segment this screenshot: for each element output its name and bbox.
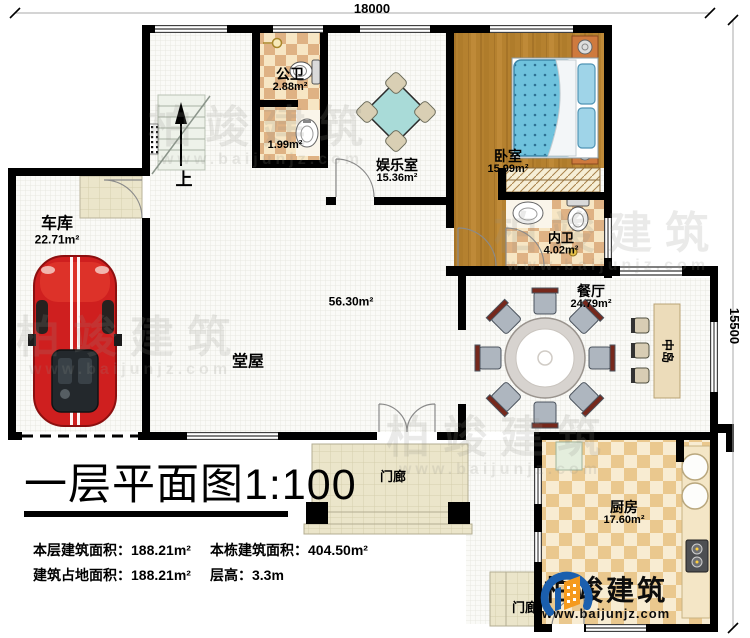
porch-column [448,502,470,524]
room-name: 内卫 [544,231,579,245]
stat-label: 本层建筑面积： [33,542,131,558]
room-label-kitchen: 厨房 17.60m² [604,500,645,526]
kitchen-sink [682,483,708,509]
stat-label: 本栋建筑面积： [210,542,308,558]
room-label-bedroom: 卧室 15.99m² [488,149,529,175]
stat-floor-area: 本层建筑面积：188.21m² [33,540,191,560]
room-area: 15.99m² [488,164,529,176]
porch-front-label: 门廊 [380,470,406,484]
plan-scale: 1:100 [244,461,357,509]
room-name: 厨房 [604,500,645,515]
hall-name: 堂屋 [232,355,264,372]
room-area: 1.99m² [268,140,303,152]
dimension-right: 15500 [727,308,741,344]
room-area: 2.88m² [273,82,308,94]
brand-logo-icon [540,566,594,624]
stat-story-height: 层高：3.3m [210,565,284,585]
dimension-top: 18000 [354,2,390,16]
stat-label: 层高： [210,567,252,583]
stat-value: 188.21m² [131,542,191,558]
room-name: 娱乐室 [376,158,418,173]
stat-value: 404.50m² [308,542,368,558]
room-area: 4.02m² [544,245,579,257]
stat-value: 3.3m [252,567,284,583]
porch-side-label: 门廊 [512,601,538,615]
room-name: 公卫 [273,67,308,82]
room-label-wash-alcove: 1.99m² [268,140,303,152]
stat-total-area: 本栋建筑面积：404.50m² [210,540,368,560]
stat-footprint: 建筑占地面积：188.21m² [33,565,191,585]
side-porch [490,572,540,626]
stairs-up-label: 上 [176,171,193,189]
room-area: 15.36m² [376,173,418,185]
room-label-public-bath: 公卫 2.88m² [273,67,308,93]
car [28,256,122,426]
room-label-ensuite: 内卫 4.02m² [544,231,579,256]
room-label-entertainment: 娱乐室 15.36m² [376,158,418,184]
room-name: 卧室 [488,149,529,164]
kitchen-sink [682,454,708,480]
room-name: 餐厅 [571,284,612,299]
hall-area: 56.30m² [329,296,374,309]
stat-value: 188.21m² [131,567,191,583]
brand-logo: 柏竣建筑 www.baijunjz.com [540,566,748,632]
room-label-dining: 餐厅 24.79m² [571,284,612,310]
floor-plan-image: 柏竣建筑 www.baijunjz.com 柏竣建筑 www.baijunjz.… [0,0,750,638]
room-label-garage: 车库 22.71m² [35,216,80,245]
title-underline [24,511,288,517]
room-area: 24.79m² [571,299,612,311]
stat-label: 建筑占地面积： [33,567,131,583]
plan-title-text: 一层平面图 [24,461,244,509]
ensuite-sink [513,202,543,224]
room-name: 车库 [35,216,80,233]
room-area: 17.60m² [604,515,645,527]
fridge [556,442,582,470]
island-label: 中岛 [661,339,674,363]
room-area: 22.71m² [35,233,80,246]
plan-title: 一层平面图1:100 [24,450,357,512]
